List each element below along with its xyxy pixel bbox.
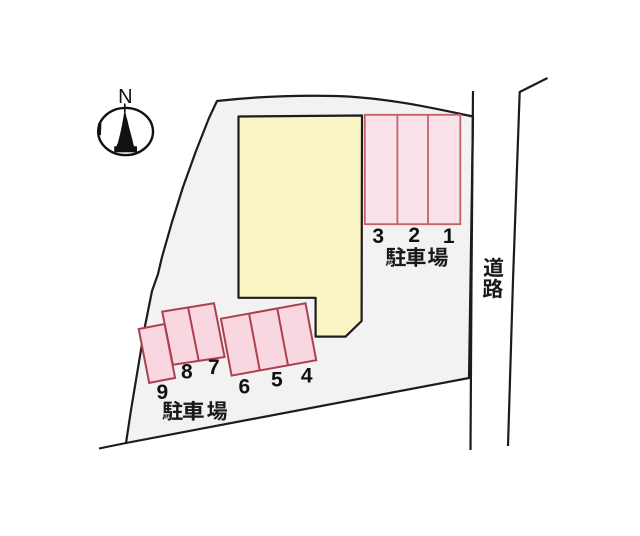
svg-text:6: 6: [238, 376, 250, 399]
svg-text:7: 7: [208, 356, 220, 379]
svg-text:3: 3: [372, 225, 384, 248]
svg-text:2: 2: [408, 224, 420, 247]
svg-text:4: 4: [301, 365, 313, 388]
svg-text:9: 9: [157, 381, 169, 404]
svg-text:5: 5: [271, 369, 283, 392]
svg-text:1: 1: [443, 225, 455, 248]
svg-text:8: 8: [181, 361, 193, 384]
